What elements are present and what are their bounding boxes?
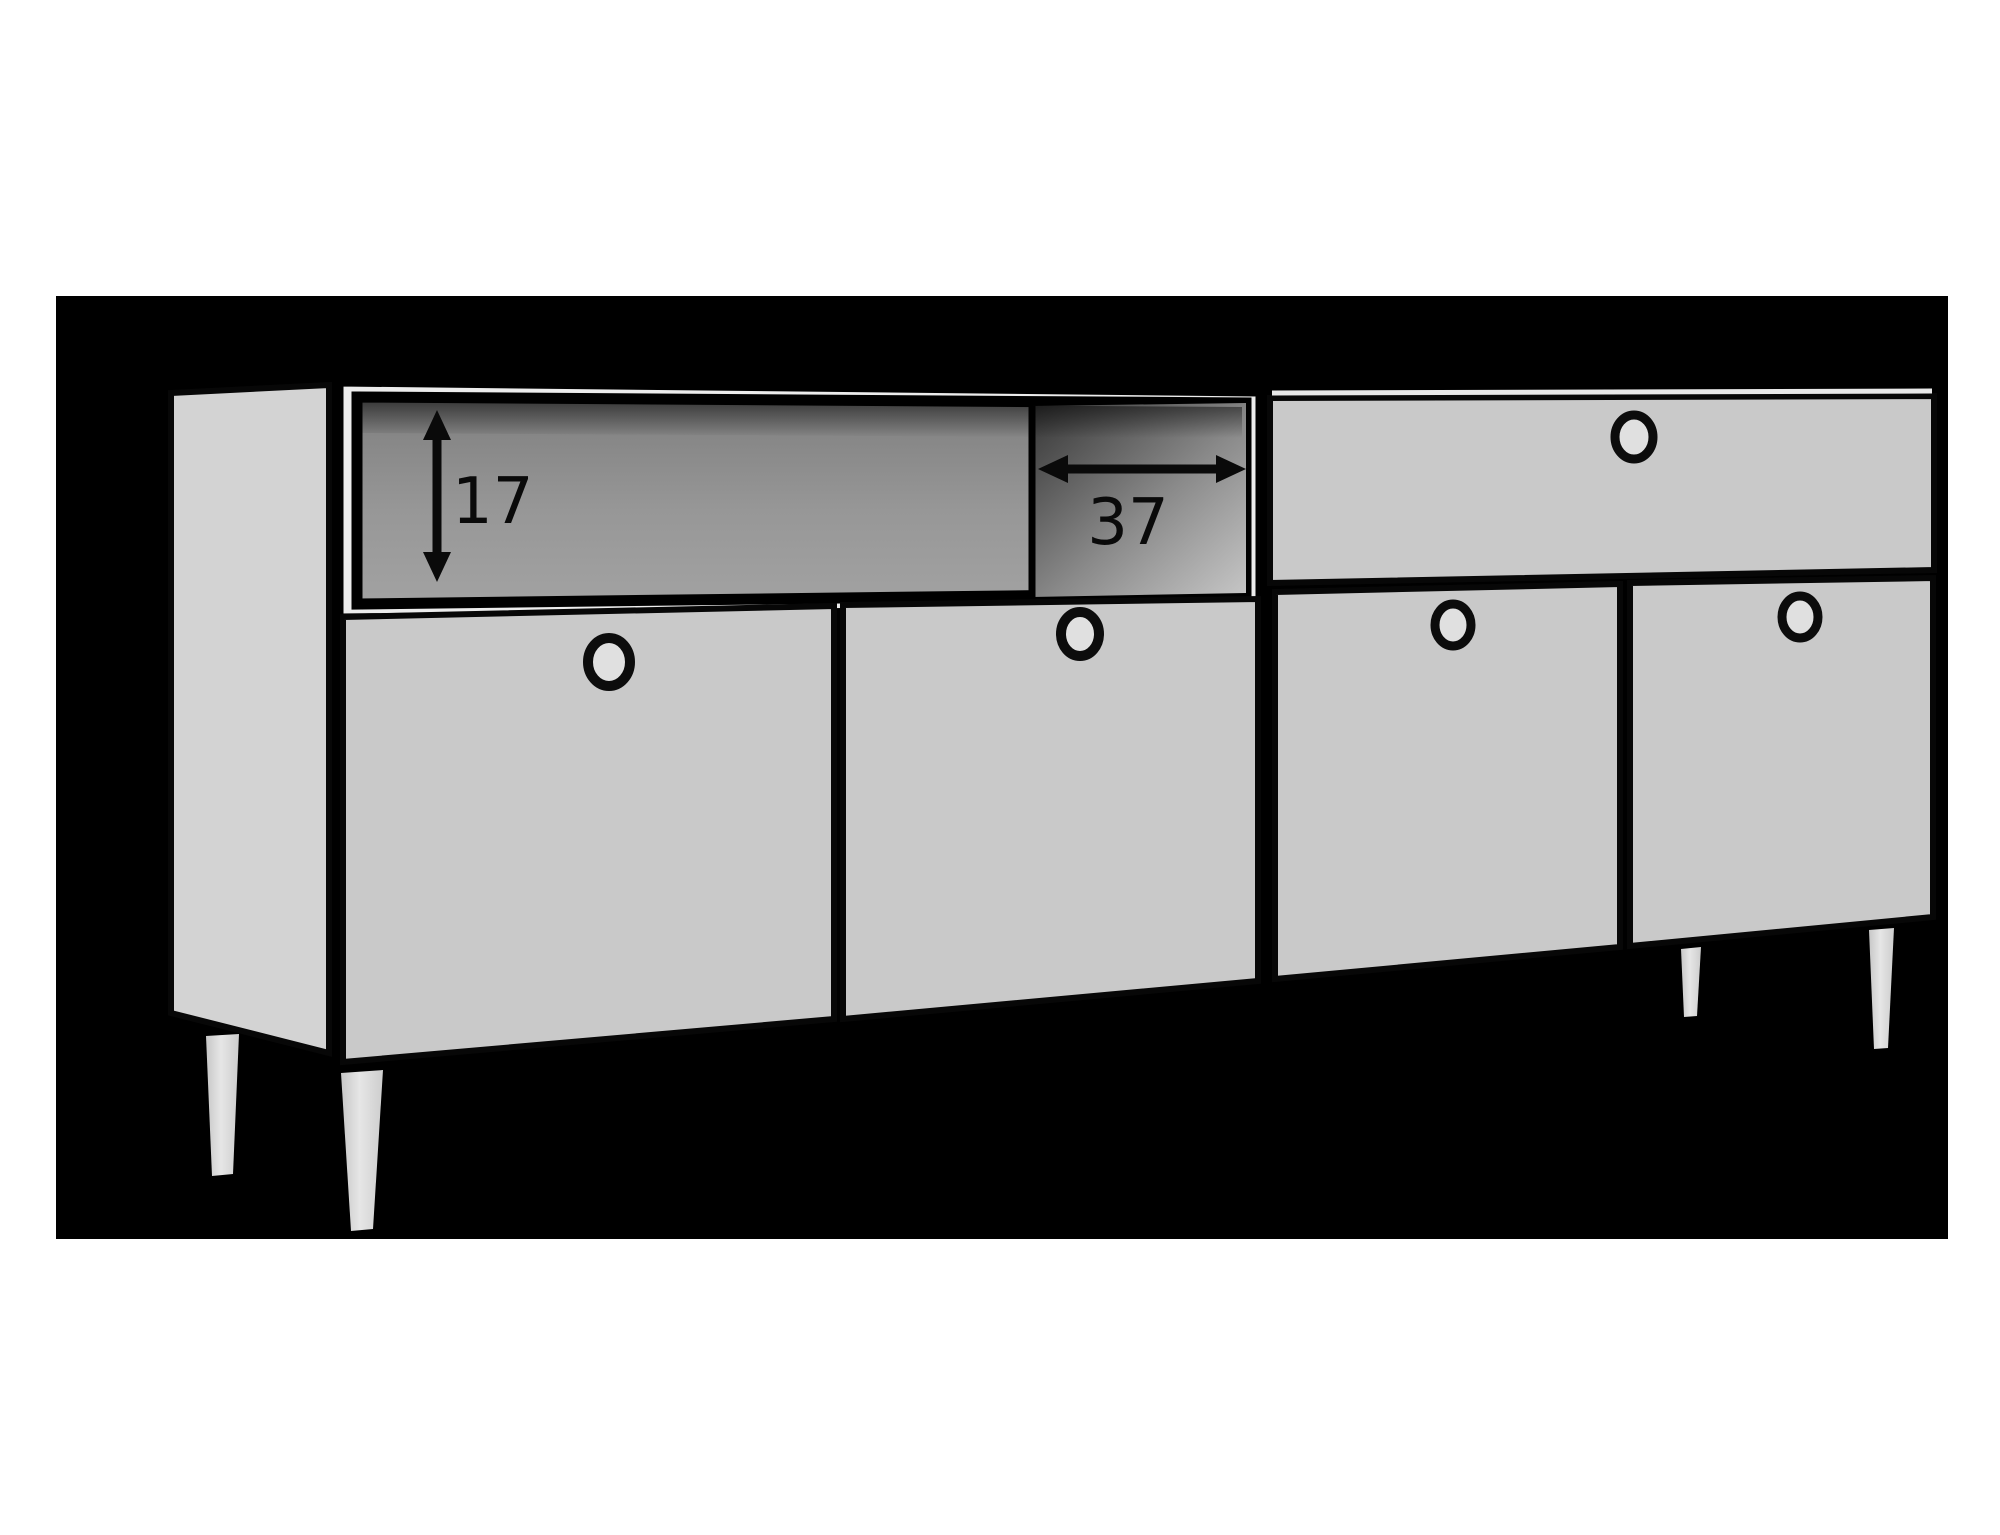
door-2 (843, 599, 1258, 1019)
door-4 (1630, 578, 1933, 946)
door-4-knob-icon (1782, 596, 1818, 638)
drawer-knob-icon (1615, 415, 1653, 459)
width-dimension-label: 37 (1087, 486, 1168, 560)
drawer-front (1270, 396, 1934, 583)
side-panel (171, 385, 329, 1053)
shelf-top-shadow (360, 401, 1242, 438)
door-3-knob-icon (1435, 604, 1471, 646)
drawer-top-highlight (1272, 391, 1932, 393)
door-1-knob-icon (588, 638, 630, 686)
furniture-dimension-diagram: 17 37 (0, 0, 2000, 1535)
door-2-knob-icon (1061, 612, 1099, 656)
diagram-page: 17 37 (0, 0, 2000, 1535)
height-dimension-label: 17 (452, 465, 533, 539)
